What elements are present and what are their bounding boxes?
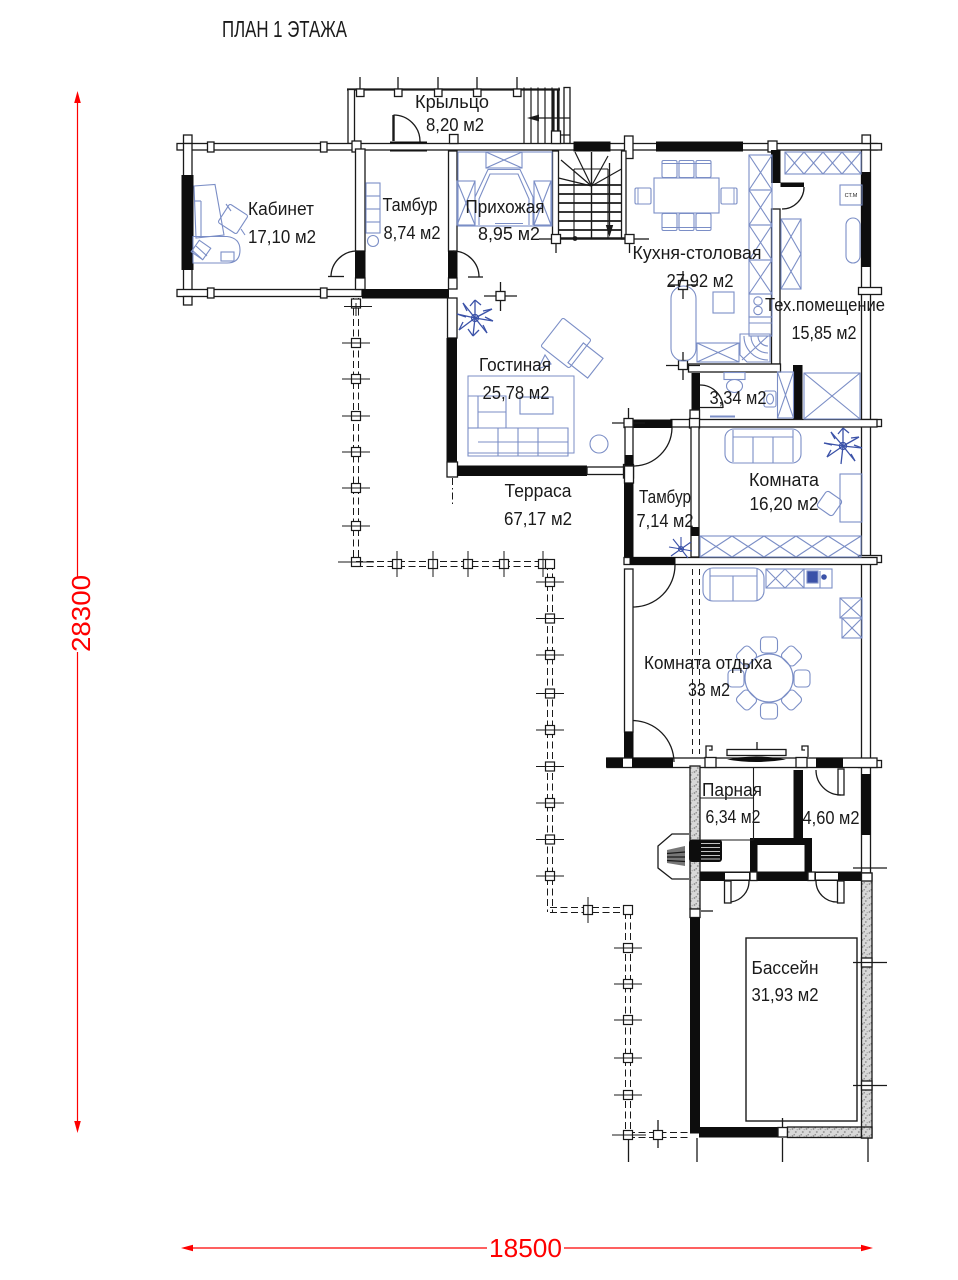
svg-text:17,10 м2: 17,10 м2: [248, 226, 316, 247]
svg-text:Тамбур: Тамбур: [639, 486, 691, 507]
svg-text:ПЛАН 1 ЭТАЖА: ПЛАН 1 ЭТАЖА: [222, 16, 347, 42]
svg-text:Прихожая: Прихожая: [466, 196, 545, 217]
svg-text:Терраса: Терраса: [505, 480, 573, 501]
svg-text:15,85 м2: 15,85 м2: [792, 322, 857, 343]
svg-text:Крыльцо: Крыльцо: [415, 91, 489, 112]
svg-text:33 м2: 33 м2: [688, 679, 730, 700]
svg-text:27,92 м2: 27,92 м2: [667, 270, 734, 291]
svg-text:18500: 18500: [489, 1233, 562, 1263]
svg-text:СТ.М: СТ.М: [845, 193, 858, 199]
svg-text:Парная: Парная: [702, 779, 762, 800]
svg-text:Комната: Комната: [749, 469, 820, 490]
svg-text:Тамбур: Тамбур: [383, 194, 438, 215]
svg-text:7,14 м2: 7,14 м2: [637, 510, 694, 531]
svg-text:67,17 м2: 67,17 м2: [504, 508, 572, 529]
svg-text:4,60 м2: 4,60 м2: [803, 807, 860, 828]
svg-text:8,20 м2: 8,20 м2: [426, 114, 484, 135]
svg-text:28300: 28300: [66, 575, 96, 652]
svg-text:Кухня-столовая: Кухня-столовая: [633, 242, 762, 263]
svg-text:3,34 м2: 3,34 м2: [710, 387, 767, 408]
svg-text:Комната отдыха: Комната отдыха: [644, 652, 773, 673]
svg-text:31,93 м2: 31,93 м2: [752, 984, 819, 1005]
svg-text:25,78 м2: 25,78 м2: [483, 382, 550, 403]
svg-text:Кабинет: Кабинет: [248, 198, 314, 219]
svg-text:Бассейн: Бассейн: [752, 957, 819, 978]
svg-text:Гостиная: Гостиная: [479, 354, 551, 375]
svg-text:8,74 м2: 8,74 м2: [384, 222, 441, 243]
svg-text:6,34 м2: 6,34 м2: [706, 806, 761, 827]
svg-text:16,20 м2: 16,20 м2: [750, 493, 819, 514]
svg-text:Тех.помещение: Тех.помещение: [765, 294, 885, 315]
svg-text:8,95 м2: 8,95 м2: [478, 223, 540, 244]
